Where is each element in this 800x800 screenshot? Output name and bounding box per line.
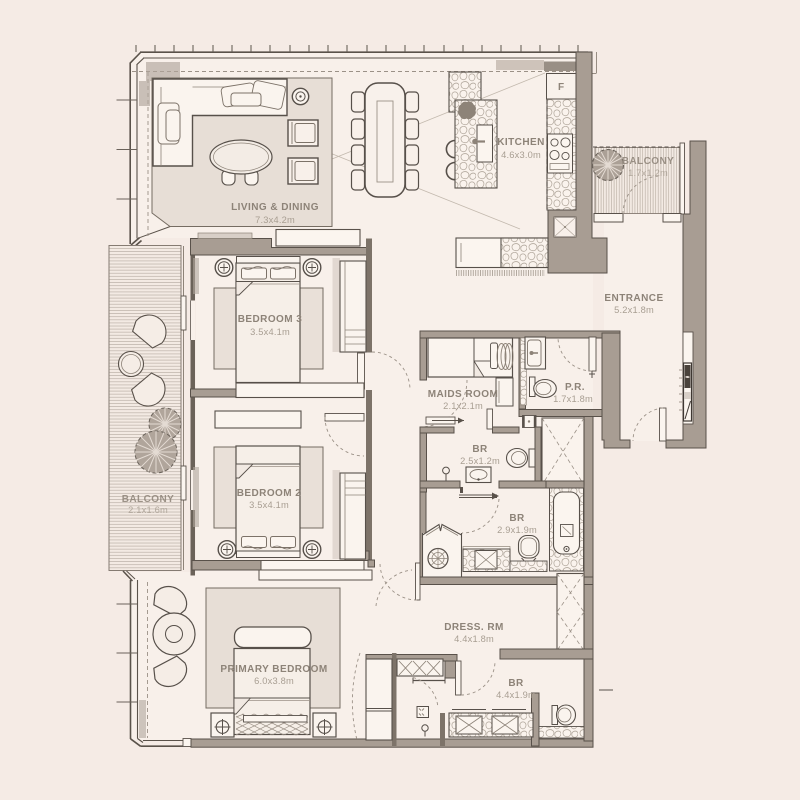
svg-text:KITCHEN: KITCHEN (497, 137, 545, 148)
svg-text:ENTRANCE: ENTRANCE (604, 293, 663, 304)
svg-text:BALCONY: BALCONY (122, 494, 175, 505)
svg-text:4.6x3.0m: 4.6x3.0m (501, 150, 541, 160)
svg-text:P.R.: P.R. (565, 382, 585, 393)
svg-text:3.5x4.1m: 3.5x4.1m (250, 327, 290, 337)
svg-text:F: F (558, 82, 564, 93)
svg-text:7.3x4.2m: 7.3x4.2m (255, 215, 295, 225)
svg-text:BR: BR (472, 444, 488, 455)
svg-text:LIVING & DINING: LIVING & DINING (231, 202, 319, 213)
svg-text:2.1x1.6m: 2.1x1.6m (128, 505, 168, 515)
svg-text:BEDROOM 3: BEDROOM 3 (238, 314, 303, 325)
svg-text:3.5x4.1m: 3.5x4.1m (249, 500, 289, 510)
svg-text:MAIDS ROOM: MAIDS ROOM (428, 389, 499, 400)
svg-text:4.4x1.9m: 4.4x1.9m (496, 690, 536, 700)
svg-text:PRIMARY BEDROOM: PRIMARY BEDROOM (220, 664, 327, 675)
svg-text:6.0x3.8m: 6.0x3.8m (254, 676, 294, 686)
svg-text:BR: BR (508, 678, 524, 689)
svg-text:BALCONY: BALCONY (622, 156, 675, 167)
svg-text:DRESS. RM: DRESS. RM (444, 622, 504, 633)
svg-text:2.5x1.2m: 2.5x1.2m (460, 456, 500, 466)
svg-text:4.4x1.8m: 4.4x1.8m (454, 634, 494, 644)
svg-text:5.2x1.8m: 5.2x1.8m (614, 305, 654, 315)
svg-text:2.9x1.9m: 2.9x1.9m (497, 525, 537, 535)
svg-text:BR: BR (509, 513, 525, 524)
svg-text:2.1x2.1m: 2.1x2.1m (443, 401, 483, 411)
svg-text:BEDROOM 2: BEDROOM 2 (237, 488, 302, 499)
svg-text:1.7x1.2m: 1.7x1.2m (628, 168, 668, 178)
svg-text:1.7x1.8m: 1.7x1.8m (553, 394, 593, 404)
